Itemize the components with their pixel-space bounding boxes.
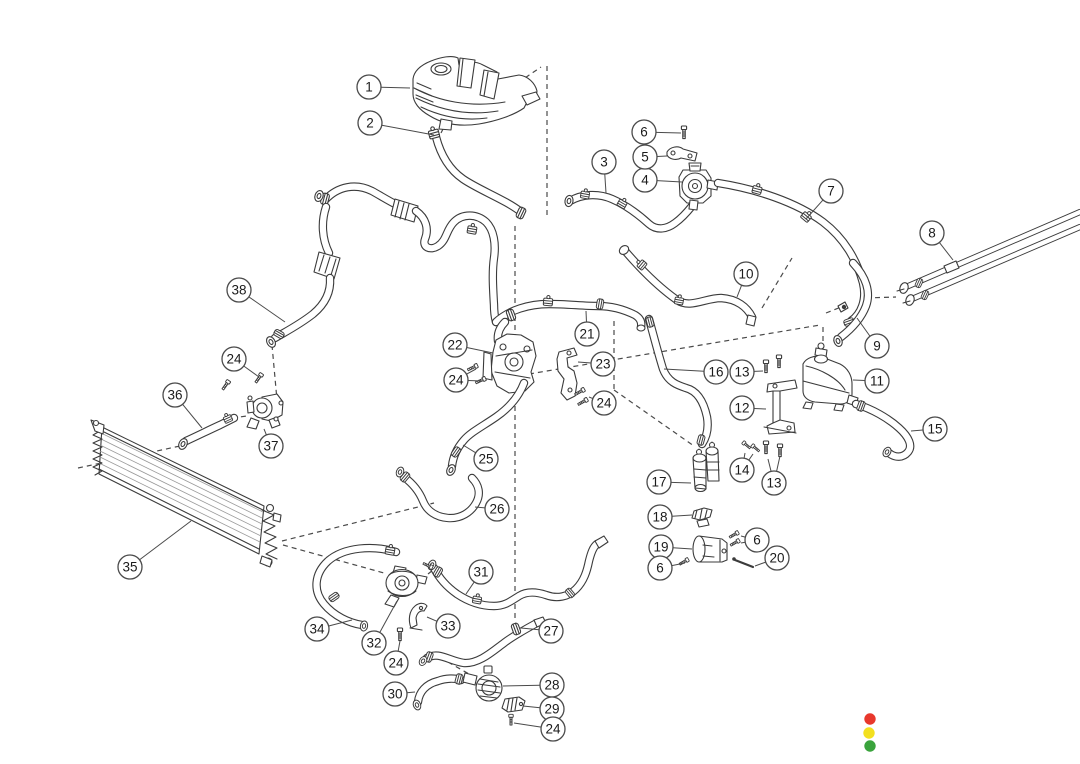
- callout-number: 22: [447, 338, 462, 353]
- callout-number: 36: [167, 388, 182, 403]
- callout-number: 27: [543, 624, 558, 639]
- mount-bracket-part: [693, 536, 727, 562]
- pump-clip-29-part: [502, 697, 525, 712]
- callout-number: 7: [827, 184, 835, 199]
- callout-number: 21: [579, 327, 594, 342]
- callout-number: 8: [928, 226, 936, 241]
- callout-number: 37: [263, 439, 278, 454]
- callout-number: 30: [387, 687, 402, 702]
- callout-number: 9: [873, 339, 881, 354]
- callout-number: 24: [388, 656, 404, 671]
- callout-number: 17: [651, 475, 666, 490]
- callout-number: 3: [600, 155, 608, 170]
- callout-number: 33: [440, 619, 455, 634]
- callout-number: 34: [309, 622, 325, 637]
- callout-number: 29: [544, 702, 559, 717]
- canvas-background: [0, 0, 1080, 764]
- callout-number: 11: [870, 374, 884, 389]
- leader-line: [754, 408, 766, 409]
- callout-number: 6: [753, 533, 761, 548]
- callout-number: 6: [640, 125, 648, 140]
- callout-number: 4: [641, 173, 649, 188]
- callout-number: 38: [231, 283, 246, 298]
- callout-number: 12: [734, 401, 749, 416]
- callout-number: 6: [656, 561, 664, 576]
- callout-number: 13: [734, 365, 749, 380]
- green-dot: [864, 740, 875, 751]
- leader-line: [468, 380, 483, 381]
- callout-number: 16: [708, 365, 723, 380]
- status-dots: [863, 713, 875, 751]
- callout-number: 19: [653, 540, 668, 555]
- leader-line: [853, 380, 865, 381]
- callout-number: 24: [226, 352, 242, 367]
- leader-line: [671, 482, 691, 483]
- callout-number: 35: [122, 560, 137, 575]
- callout-number: 32: [366, 636, 381, 651]
- callout-number: 18: [652, 510, 667, 525]
- callout-number: 23: [595, 357, 610, 372]
- callout-number: 26: [489, 502, 504, 517]
- cooling-system-exploded-diagram: 1234567891011121313141516171819620621222…: [0, 0, 1080, 764]
- callout-number: 2: [366, 116, 374, 131]
- callout-number: 14: [734, 463, 750, 478]
- callout-number: 20: [769, 551, 784, 566]
- yellow-dot: [863, 727, 874, 738]
- callout-number: 13: [766, 476, 781, 491]
- callout-number: 31: [473, 565, 488, 580]
- parts-diagram-page: 1234567891011121313141516171819620621222…: [0, 0, 1080, 764]
- callout-number: 24: [596, 396, 612, 411]
- leader-line: [656, 132, 681, 133]
- callout-number: 28: [544, 678, 559, 693]
- callout-number: 24: [448, 373, 464, 388]
- callout-number: 5: [641, 150, 649, 165]
- callout-number: 10: [738, 267, 753, 282]
- callout-number: 24: [545, 722, 561, 737]
- callout-number: 15: [927, 422, 942, 437]
- red-dot: [864, 713, 875, 724]
- leader-line: [381, 87, 410, 88]
- callout-number: 25: [478, 452, 493, 467]
- callout-number: 1: [365, 80, 373, 95]
